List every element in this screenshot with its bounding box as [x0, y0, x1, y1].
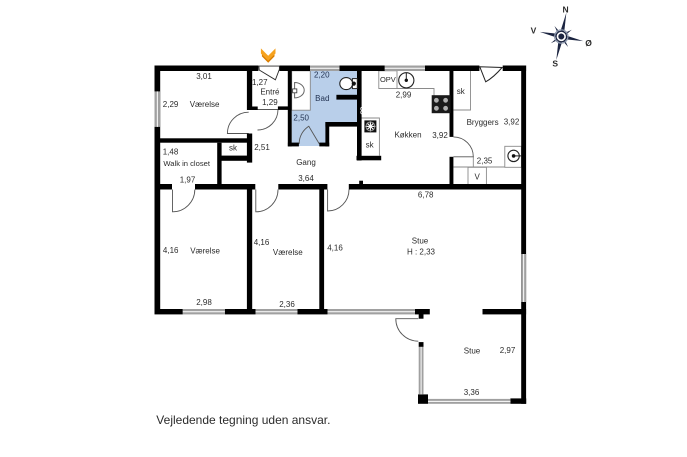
svg-text:2,20: 2,20 [314, 71, 330, 80]
svg-text:3,92: 3,92 [504, 117, 520, 126]
svg-text:N: N [563, 5, 569, 15]
svg-text:2,50: 2,50 [293, 113, 309, 122]
svg-text:Stue: Stue [464, 346, 481, 355]
svg-text:1,29: 1,29 [262, 98, 278, 107]
svg-text:Bryggers: Bryggers [467, 118, 499, 127]
svg-text:2,51: 2,51 [254, 143, 270, 152]
svg-text:2,35: 2,35 [477, 157, 493, 166]
svg-text:Bad: Bad [315, 94, 329, 103]
svg-text:3,92: 3,92 [432, 131, 448, 140]
svg-text:Stue: Stue [412, 237, 429, 246]
svg-text:2,99: 2,99 [396, 90, 412, 99]
svg-text:Gang: Gang [296, 158, 316, 167]
svg-text:Ø: Ø [585, 38, 592, 48]
svg-text:Værelse: Værelse [273, 248, 303, 257]
svg-text:H : 2,33: H : 2,33 [407, 248, 436, 257]
svg-text:Værelse: Værelse [190, 100, 220, 109]
svg-text:sk: sk [366, 140, 375, 149]
svg-text:4,16: 4,16 [327, 244, 343, 253]
svg-text:Entré: Entré [260, 87, 280, 96]
svg-text:2,29: 2,29 [163, 100, 179, 109]
svg-text:6,78: 6,78 [418, 191, 434, 200]
svg-text:3,01: 3,01 [196, 72, 212, 81]
svg-text:4,16: 4,16 [254, 238, 270, 247]
svg-text:2,97: 2,97 [500, 346, 516, 355]
svg-text:4,16: 4,16 [163, 246, 179, 255]
svg-text:3,64: 3,64 [298, 174, 314, 183]
svg-text:OPV: OPV [380, 75, 396, 84]
svg-text:Vejledende tegning uden ansvar: Vejledende tegning uden ansvar. [156, 413, 330, 427]
svg-text:1,27: 1,27 [252, 78, 268, 87]
svg-text:V: V [475, 172, 481, 181]
svg-text:S: S [552, 58, 558, 68]
svg-text:sk: sk [457, 87, 466, 96]
svg-text:1,97: 1,97 [180, 176, 196, 185]
svg-text:Walk in closet: Walk in closet [163, 159, 210, 168]
svg-text:V: V [531, 25, 537, 35]
svg-text:sk: sk [229, 143, 238, 152]
svg-text:Værelse: Værelse [190, 247, 220, 256]
svg-text:Køkken: Køkken [394, 130, 421, 139]
svg-text:3,36: 3,36 [464, 388, 480, 397]
svg-text:1,48: 1,48 [163, 148, 179, 157]
svg-text:2,98: 2,98 [196, 298, 212, 307]
svg-text:2,36: 2,36 [279, 300, 295, 309]
